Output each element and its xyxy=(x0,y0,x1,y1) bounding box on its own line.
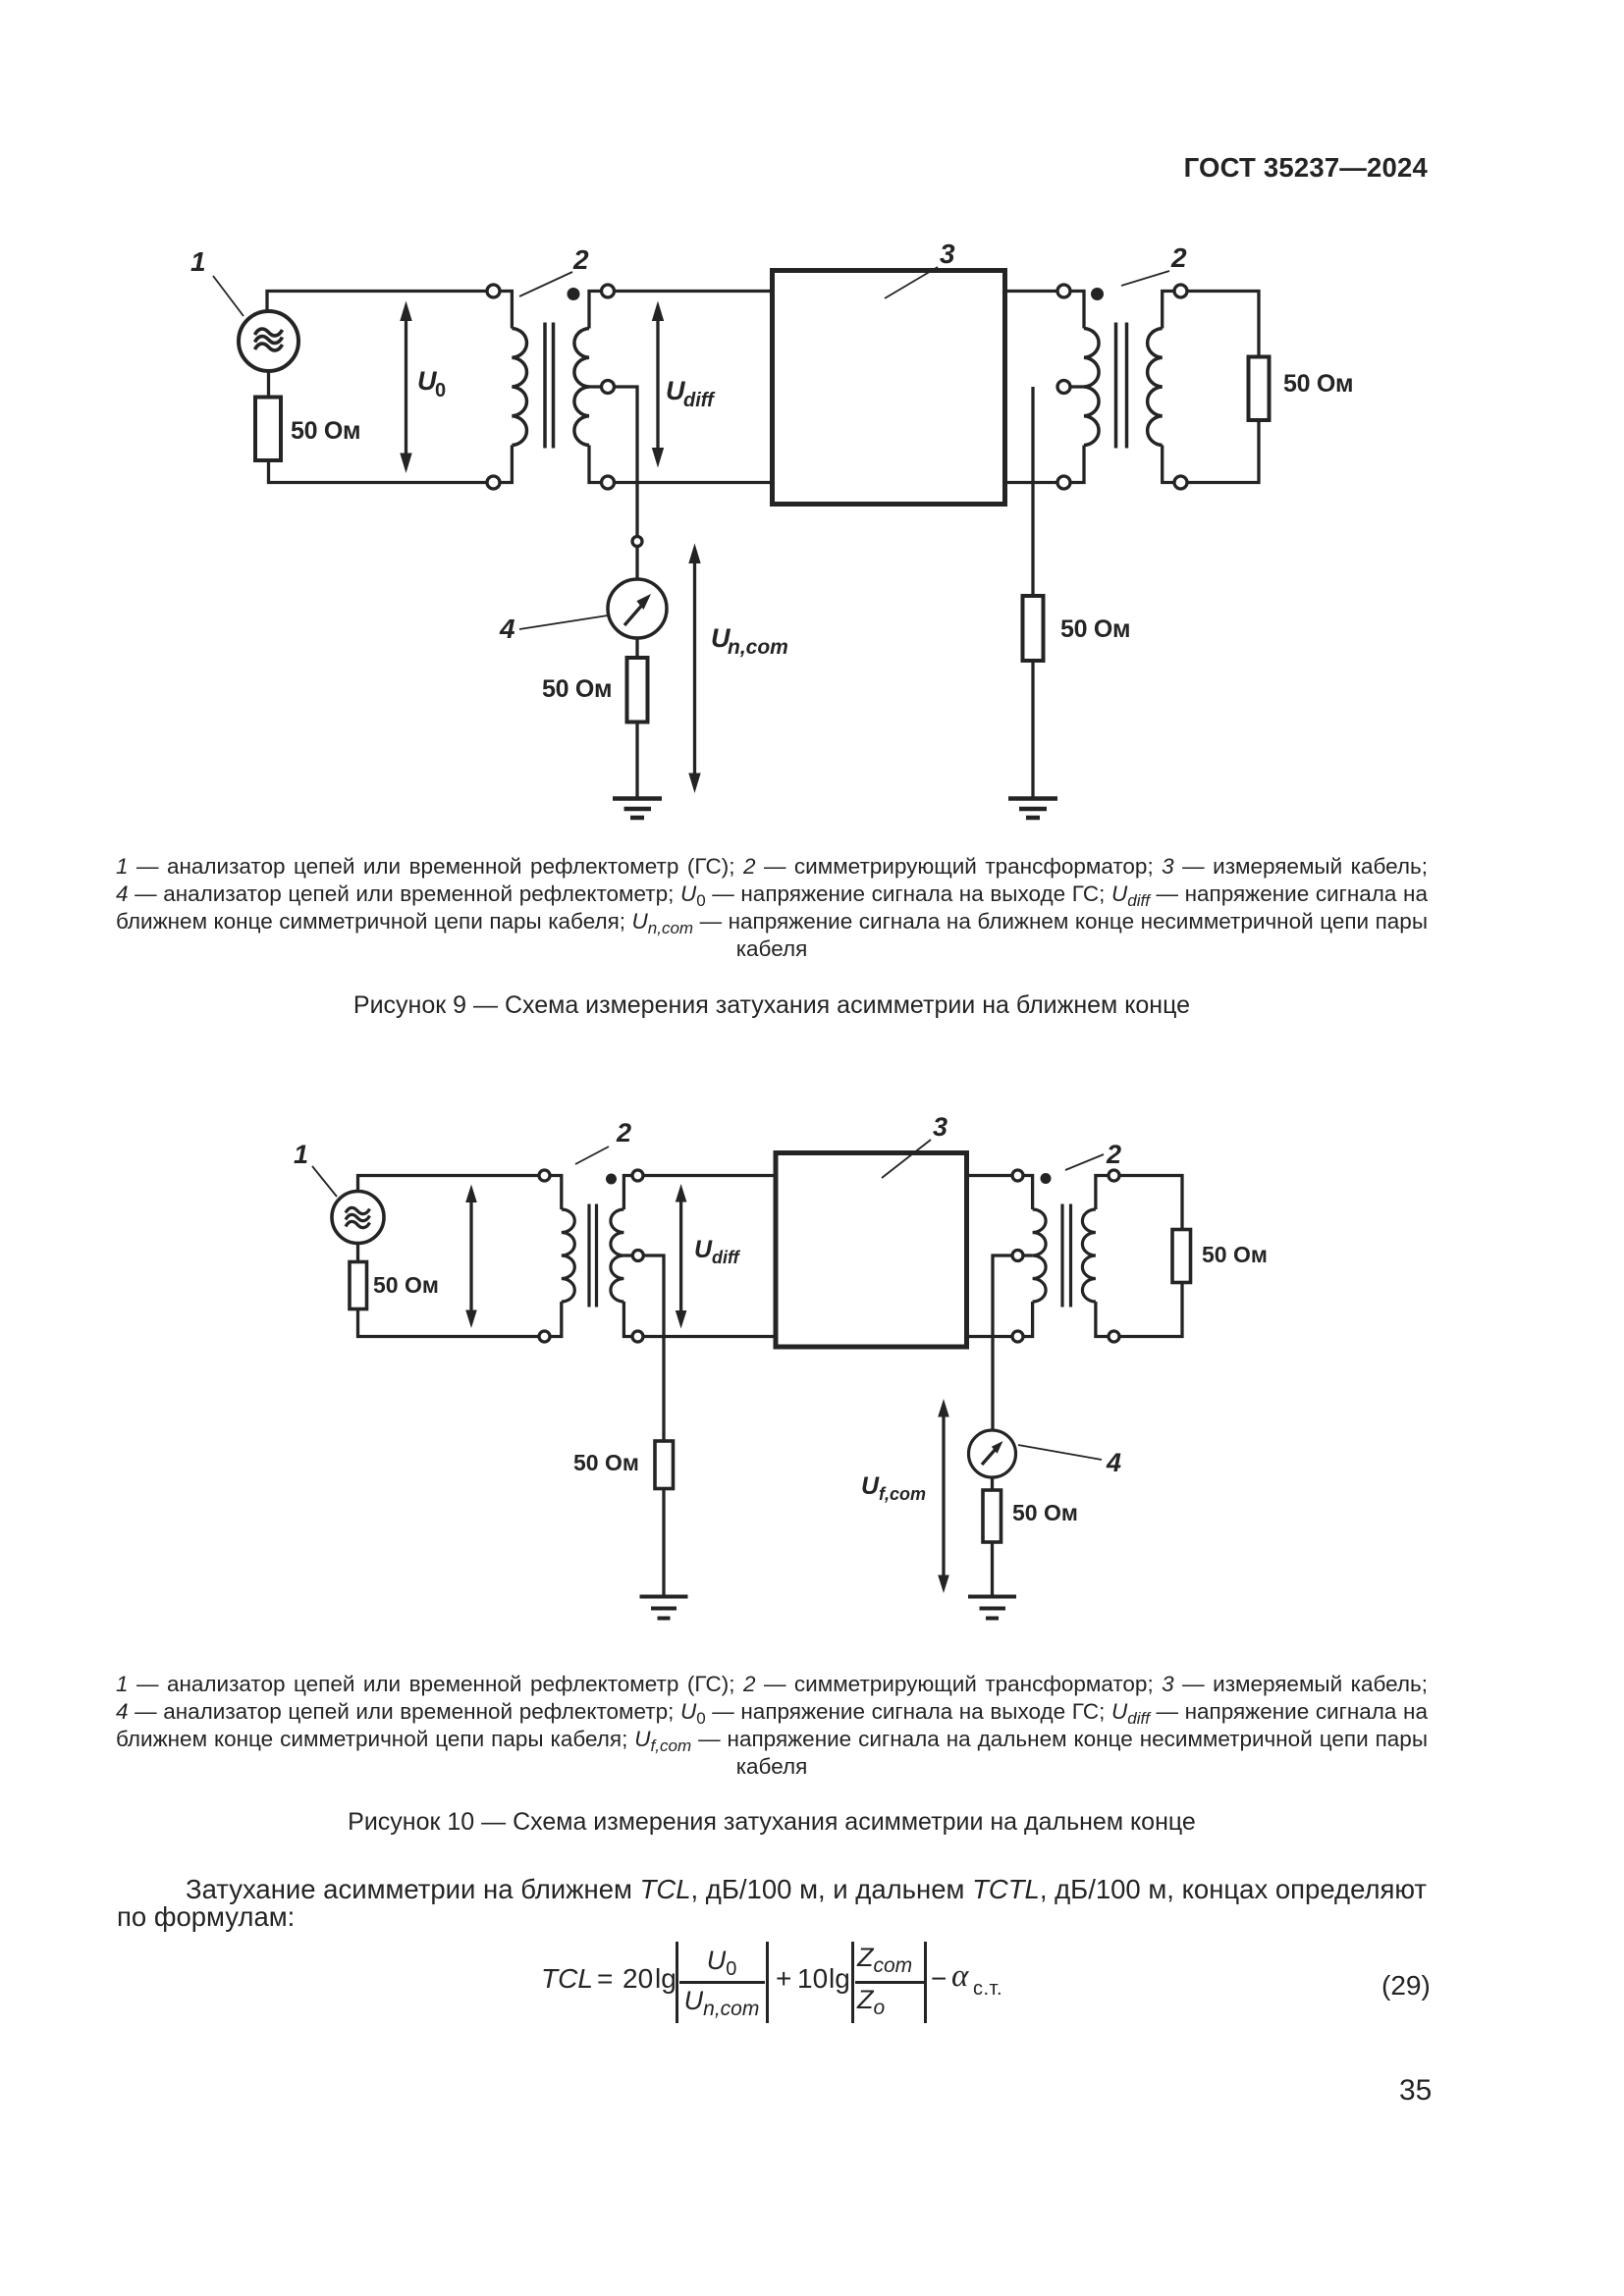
svg-text:3: 3 xyxy=(933,1112,947,1142)
svg-text:2: 2 xyxy=(1170,242,1187,273)
svg-text:2: 2 xyxy=(1106,1140,1121,1169)
svg-text:f,com: f,com xyxy=(879,1484,926,1504)
svg-text:1: 1 xyxy=(294,1140,308,1169)
svg-text:2: 2 xyxy=(616,1118,631,1148)
svg-text:50 Ом: 50 Ом xyxy=(1060,615,1130,643)
svg-text:50 Ом: 50 Ом xyxy=(291,417,360,445)
svg-text:U: U xyxy=(861,1472,880,1500)
svg-text:2: 2 xyxy=(572,244,589,275)
svg-text:diff: diff xyxy=(683,390,716,411)
svg-text:50 Ом: 50 Ом xyxy=(542,675,612,703)
svg-text:3: 3 xyxy=(940,239,955,269)
svg-text:0: 0 xyxy=(435,380,446,401)
svg-text:50 Ом: 50 Ом xyxy=(1012,1500,1078,1525)
svg-text:50 Ом: 50 Ом xyxy=(1283,370,1353,398)
svg-text:50 Ом: 50 Ом xyxy=(1202,1242,1268,1267)
svg-text:4: 4 xyxy=(1106,1448,1121,1477)
svg-text:1: 1 xyxy=(190,246,206,277)
svg-text:4: 4 xyxy=(499,614,515,644)
svg-text:diff: diff xyxy=(712,1248,741,1267)
svg-text:n,com: n,com xyxy=(728,636,788,659)
svg-text:50 Ом: 50 Ом xyxy=(373,1272,439,1298)
svg-text:50 Ом: 50 Ом xyxy=(573,1450,639,1475)
svg-text:U: U xyxy=(694,1236,713,1263)
